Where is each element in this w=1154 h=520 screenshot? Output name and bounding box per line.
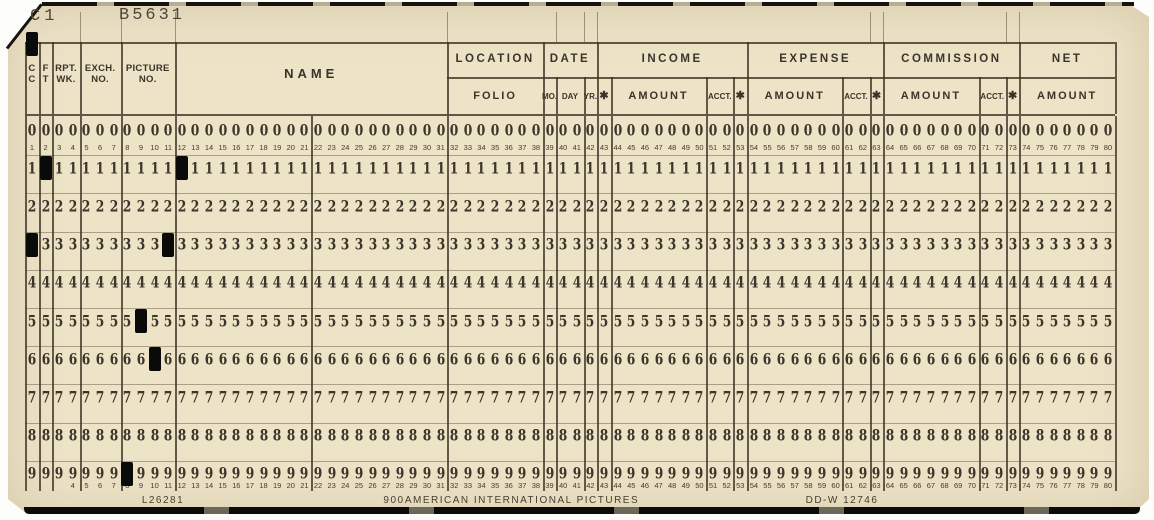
- digit-cell: 0: [843, 120, 854, 141]
- digit-cell: 3: [980, 234, 991, 255]
- digit-cell: 0: [912, 120, 923, 141]
- digit-cell: 0: [517, 120, 528, 141]
- digit-cell: 1: [557, 158, 568, 179]
- digit-cell: 0: [108, 120, 119, 141]
- digit-cell: 6: [530, 349, 541, 370]
- digit-cell: 2: [775, 196, 786, 217]
- digit-cell: 5: [462, 311, 473, 332]
- digit-cell: 8: [476, 425, 487, 446]
- digit-cell: 3: [1021, 234, 1032, 255]
- column-number-bottom: 52: [720, 481, 734, 490]
- digit-cell: 1: [122, 158, 133, 179]
- digit-cell: 7: [285, 387, 296, 408]
- digit-cell: 4: [598, 273, 609, 294]
- digit-cell: 2: [108, 196, 119, 217]
- punch-hole: [40, 156, 52, 180]
- digit-cell: 1: [803, 158, 814, 179]
- digit-cell: 5: [312, 311, 323, 332]
- digit-cell: 6: [367, 349, 378, 370]
- digit-cell: 5: [925, 311, 936, 332]
- column-number-bottom: 71: [978, 481, 992, 490]
- digit-cell: 8: [53, 425, 64, 446]
- digit-cell: 3: [1061, 234, 1072, 255]
- digit-cell: 0: [612, 120, 623, 141]
- digit-cell: 3: [394, 234, 405, 255]
- digit-cell: 0: [340, 120, 351, 141]
- digit-cell: 7: [217, 387, 228, 408]
- digit-cell: 5: [721, 311, 732, 332]
- scanned-punch-card-page: C1 B5631 CCFTRPT.WK.EXCH.NO.PICTURENO.NA…: [0, 0, 1154, 520]
- digit-cell: 1: [966, 158, 977, 179]
- digit-cell: 1: [244, 158, 255, 179]
- digit-cell: 3: [258, 234, 269, 255]
- digit-cell: 6: [707, 349, 718, 370]
- digit-cell: 5: [530, 311, 541, 332]
- digit-cell: 5: [108, 311, 119, 332]
- digit-cell: 0: [421, 120, 432, 141]
- digit-cell: 8: [884, 425, 895, 446]
- digit-cell: 4: [271, 273, 282, 294]
- column-number-top: 25: [352, 143, 366, 152]
- digit-cell: 4: [653, 273, 664, 294]
- digit-cell: 8: [503, 425, 514, 446]
- column-number-bottom: 10: [148, 481, 162, 490]
- digit-cell: 2: [1061, 196, 1072, 217]
- digit-cell: 1: [380, 158, 391, 179]
- digit-cell: 8: [162, 425, 173, 446]
- digit-cell: 5: [639, 311, 650, 332]
- digit-cell: 6: [898, 349, 909, 370]
- digit-cell: 5: [176, 311, 187, 332]
- digit-cell: 3: [993, 234, 1004, 255]
- digit-cell: 0: [544, 120, 555, 141]
- digit-cell: 4: [299, 273, 310, 294]
- field-header-name: NAME: [251, 66, 371, 81]
- digit-cell: 7: [122, 387, 133, 408]
- digit-cell: 4: [680, 273, 691, 294]
- digit-cell: 2: [421, 196, 432, 217]
- digit-cell: 4: [939, 273, 950, 294]
- company-name: AMERICAN INTERNATIONAL PICTURES: [405, 495, 639, 506]
- digit-cell: 0: [939, 120, 950, 141]
- column-number-top: 31: [434, 143, 448, 152]
- digit-cell: 8: [312, 425, 323, 446]
- digit-cell: 5: [598, 311, 609, 332]
- digit-cell: 3: [748, 234, 759, 255]
- digit-cell: 7: [530, 387, 541, 408]
- digit-cell: 4: [857, 273, 868, 294]
- digit-cell: 0: [162, 120, 173, 141]
- column-number-top: 39: [543, 143, 557, 152]
- digit-cell: 6: [53, 349, 64, 370]
- digit-cell: 4: [312, 273, 323, 294]
- digit-cell: 8: [462, 425, 473, 446]
- column-number-bottom: 73: [1006, 481, 1020, 490]
- digit-cell: 5: [408, 311, 419, 332]
- digit-cell: 0: [271, 120, 282, 141]
- column-number-top: 32: [447, 143, 461, 152]
- digit-cell: 7: [326, 387, 337, 408]
- digit-cell: 3: [435, 234, 446, 255]
- digit-cell: 4: [816, 273, 827, 294]
- digit-cell: 2: [557, 196, 568, 217]
- digit-cell: 4: [408, 273, 419, 294]
- digit-cell: 0: [380, 120, 391, 141]
- column-number-top: 37: [515, 143, 529, 152]
- digit-cell: 0: [734, 120, 745, 141]
- digit-cell: 4: [231, 273, 242, 294]
- digit-cell: 8: [149, 425, 160, 446]
- digit-cell: 1: [980, 158, 991, 179]
- digit-cell: 1: [530, 158, 541, 179]
- digit-cell: 3: [721, 234, 732, 255]
- column-number-bottom: 47: [652, 481, 666, 490]
- digit-cell: 6: [380, 349, 391, 370]
- digit-cell: 0: [367, 120, 378, 141]
- column-number-bottom: 79: [1087, 481, 1101, 490]
- digit-cell: 6: [421, 349, 432, 370]
- column-number-top: 43: [597, 143, 611, 152]
- digit-cell: 7: [94, 387, 105, 408]
- digit-cell: 4: [26, 273, 37, 294]
- digit-cell: 6: [122, 349, 133, 370]
- digit-cell: 2: [639, 196, 650, 217]
- digit-cell: 6: [394, 349, 405, 370]
- column-number-top: 24: [338, 143, 352, 152]
- digit-cell: 1: [394, 158, 405, 179]
- digit-cell: 3: [326, 234, 337, 255]
- digit-cell: 2: [1034, 196, 1045, 217]
- digit-cell: 1: [707, 158, 718, 179]
- digit-cell: 8: [67, 425, 78, 446]
- digit-cell: 4: [830, 273, 841, 294]
- digit-cell: 1: [721, 158, 732, 179]
- digit-cell: 8: [435, 425, 446, 446]
- column-number-bottom: 68: [938, 481, 952, 490]
- digit-cell: 4: [748, 273, 759, 294]
- digit-cell: 7: [517, 387, 528, 408]
- digit-cell: 2: [394, 196, 405, 217]
- digit-cell: 1: [843, 158, 854, 179]
- column-number-top: 3: [52, 143, 66, 152]
- column-number-top: 14: [202, 143, 216, 152]
- digit-cell: 4: [789, 273, 800, 294]
- digit-cell: 7: [149, 387, 160, 408]
- column-number-bottom: 33: [461, 481, 475, 490]
- digit-cell: 7: [1021, 387, 1032, 408]
- digit-cell: 3: [939, 234, 950, 255]
- column-number-bottom: 66: [910, 481, 924, 490]
- digit-cell: 7: [803, 387, 814, 408]
- digit-cell: 4: [394, 273, 405, 294]
- digit-cell: 4: [503, 273, 514, 294]
- digit-cell: 7: [435, 387, 446, 408]
- column-number-top: 19: [270, 143, 284, 152]
- column-number-top: 48: [665, 143, 679, 152]
- digit-cell: 8: [122, 425, 133, 446]
- digit-cell: 8: [530, 425, 541, 446]
- column-number-bottom: 80: [1101, 481, 1115, 490]
- digit-cell: 5: [734, 311, 745, 332]
- digit-cell: 1: [857, 158, 868, 179]
- digit-cell: 5: [816, 311, 827, 332]
- digit-cell: 5: [857, 311, 868, 332]
- column-number-top: 6: [93, 143, 107, 152]
- digit-cell: 2: [939, 196, 950, 217]
- digit-cell: 0: [231, 120, 242, 141]
- digit-cell: 3: [231, 234, 242, 255]
- digit-cell: 0: [135, 120, 146, 141]
- digit-cell: 2: [1021, 196, 1032, 217]
- digit-cell: 8: [789, 425, 800, 446]
- digit-cell: 6: [408, 349, 419, 370]
- digit-cell: 2: [843, 196, 854, 217]
- digit-cell: 6: [162, 349, 173, 370]
- column-number-bottom: 65: [897, 481, 911, 490]
- column-number-top: 60: [829, 143, 843, 152]
- digit-cell: 2: [830, 196, 841, 217]
- digit-cell: 4: [203, 273, 214, 294]
- digit-cell: 5: [149, 311, 160, 332]
- digit-cell: 5: [217, 311, 228, 332]
- digit-cell: 5: [884, 311, 895, 332]
- digit-cell: 8: [585, 425, 596, 446]
- digit-cell: 7: [1061, 387, 1072, 408]
- column-number-top: 63: [869, 143, 883, 152]
- column-number-top: 2: [39, 143, 53, 152]
- digit-cell: 5: [1034, 311, 1045, 332]
- digit-cell: 6: [67, 349, 78, 370]
- digit-cell: 6: [476, 349, 487, 370]
- column-number-bottom: 17: [243, 481, 257, 490]
- digit-cell: 8: [857, 425, 868, 446]
- column-number-top: 18: [257, 143, 271, 152]
- digit-cell: 3: [53, 234, 64, 255]
- digit-cell: 8: [544, 425, 555, 446]
- column-number-top: 68: [938, 143, 952, 152]
- digit-cell: 7: [557, 387, 568, 408]
- digit-cell: 4: [326, 273, 337, 294]
- digit-cell: 8: [448, 425, 459, 446]
- digit-cell: 6: [653, 349, 664, 370]
- digit-cell: 2: [53, 196, 64, 217]
- digit-cell: 1: [149, 158, 160, 179]
- digit-cell: 7: [1048, 387, 1059, 408]
- column-number-bottom: 58: [801, 481, 815, 490]
- digit-cell: 6: [108, 349, 119, 370]
- column-number-bottom: 22: [311, 481, 325, 490]
- digit-cell: 1: [53, 158, 64, 179]
- digit-cell: 1: [1102, 158, 1113, 179]
- digit-cell: 1: [353, 158, 364, 179]
- digit-cell: 5: [626, 311, 637, 332]
- digit-cell: 1: [748, 158, 759, 179]
- column-number-bottom: 15: [216, 481, 230, 490]
- digit-cell: 7: [1102, 387, 1113, 408]
- digit-cell: 0: [176, 120, 187, 141]
- digit-cell: 2: [857, 196, 868, 217]
- column-number-bottom: 39: [543, 481, 557, 490]
- digit-cell: 7: [162, 387, 173, 408]
- card-top-edge: [42, 2, 1134, 6]
- column-number-top: 70: [965, 143, 979, 152]
- digit-cell: 8: [1034, 425, 1045, 446]
- digit-cell: 6: [326, 349, 337, 370]
- digit-cell: 5: [666, 311, 677, 332]
- digit-cell: 6: [517, 349, 528, 370]
- digit-cell: 3: [639, 234, 650, 255]
- digit-cell: 2: [81, 196, 92, 217]
- column-number-bottom: 57: [788, 481, 802, 490]
- digit-cell: 0: [312, 120, 323, 141]
- digit-cell: 9: [40, 464, 51, 485]
- row-ledger-line: [25, 346, 1115, 347]
- digit-cell: 1: [653, 158, 664, 179]
- digit-cell: 7: [40, 387, 51, 408]
- digit-cell: 8: [912, 425, 923, 446]
- digit-cell: 8: [721, 425, 732, 446]
- digit-cell: 0: [626, 120, 637, 141]
- digit-cell: 1: [285, 158, 296, 179]
- column-number-bottom: 56: [774, 481, 788, 490]
- column-number-bottom: 60: [829, 481, 843, 490]
- column-number-top: 1: [25, 143, 39, 152]
- digit-cell: 2: [299, 196, 310, 217]
- digit-cell: 2: [1102, 196, 1113, 217]
- digit-cell: 3: [312, 234, 323, 255]
- digit-cell: 3: [530, 234, 541, 255]
- digit-cell: 5: [81, 311, 92, 332]
- digit-cell: 0: [94, 120, 105, 141]
- punch-hole: [26, 233, 38, 257]
- digit-cell: 4: [435, 273, 446, 294]
- digit-cell: 3: [1034, 234, 1045, 255]
- digit-cell: 0: [462, 120, 473, 141]
- column-number-top: 22: [311, 143, 325, 152]
- digit-cell: 6: [203, 349, 214, 370]
- column-number-bottom: 5: [79, 481, 93, 490]
- digit-cell: 1: [871, 158, 882, 179]
- digit-cell: 6: [503, 349, 514, 370]
- header-mid-rule: [447, 77, 1115, 79]
- digit-cell: 6: [993, 349, 1004, 370]
- digit-cell: 8: [980, 425, 991, 446]
- digit-cell: 6: [803, 349, 814, 370]
- digit-cell: 8: [1061, 425, 1072, 446]
- digit-cell: 7: [1075, 387, 1086, 408]
- digit-cell: 6: [244, 349, 255, 370]
- digit-cell: 0: [26, 120, 37, 141]
- digit-cell: 2: [707, 196, 718, 217]
- column-number-bottom: 18: [257, 481, 271, 490]
- column-number-top: 74: [1019, 143, 1033, 152]
- digit-cell: 0: [1021, 120, 1032, 141]
- digit-cell: 4: [1048, 273, 1059, 294]
- digit-cell: 7: [925, 387, 936, 408]
- digit-cell: 1: [340, 158, 351, 179]
- digit-cell: 2: [789, 196, 800, 217]
- digit-cell: 7: [775, 387, 786, 408]
- digit-cell: 6: [340, 349, 351, 370]
- column-number-bottom: 44: [611, 481, 625, 490]
- digit-cell: 2: [435, 196, 446, 217]
- digit-cell: 8: [707, 425, 718, 446]
- column-number-bottom: 36: [502, 481, 516, 490]
- digit-cell: 8: [653, 425, 664, 446]
- digit-cell: 0: [1007, 120, 1018, 141]
- digit-cell: 5: [244, 311, 255, 332]
- digit-cell: 0: [190, 120, 201, 141]
- digit-cell: 4: [40, 273, 51, 294]
- digit-cell: 1: [544, 158, 555, 179]
- column-number-bottom: 28: [393, 481, 407, 490]
- column-number-top: 8: [120, 143, 134, 152]
- digit-cell: 3: [898, 234, 909, 255]
- digit-cell: 2: [190, 196, 201, 217]
- digit-cell: 3: [353, 234, 364, 255]
- digit-cell: 0: [680, 120, 691, 141]
- digit-cell: 4: [285, 273, 296, 294]
- digit-cell: 6: [353, 349, 364, 370]
- digit-cell: 2: [1089, 196, 1100, 217]
- digit-cell: 5: [53, 311, 64, 332]
- digit-cell: 6: [81, 349, 92, 370]
- digit-cell: 4: [734, 273, 745, 294]
- digit-cell: 5: [353, 311, 364, 332]
- digit-cell: 4: [707, 273, 718, 294]
- digit-cell: 0: [149, 120, 160, 141]
- digit-cell: 5: [435, 311, 446, 332]
- digit-cell: 3: [612, 234, 623, 255]
- digit-cell: 5: [557, 311, 568, 332]
- digit-cell: 2: [489, 196, 500, 217]
- column-number-bottom: 24: [338, 481, 352, 490]
- column-number-bottom: 29: [406, 481, 420, 490]
- digit-cell: 0: [530, 120, 541, 141]
- digit-cell: 2: [122, 196, 133, 217]
- digit-cell: 4: [585, 273, 596, 294]
- digit-cell: 5: [612, 311, 623, 332]
- digit-cell: 5: [285, 311, 296, 332]
- digit-cell: 3: [517, 234, 528, 255]
- digit-cell: 8: [1048, 425, 1059, 446]
- top-strip-tick: [870, 12, 871, 42]
- digit-cell: 0: [1048, 120, 1059, 141]
- digit-cell: 5: [912, 311, 923, 332]
- digit-cell: 0: [871, 120, 882, 141]
- column-number-bottom: 42: [583, 481, 597, 490]
- top-strip-tick: [597, 12, 598, 42]
- digit-cell: 2: [666, 196, 677, 217]
- digit-cell: 0: [748, 120, 759, 141]
- digit-cell: 8: [952, 425, 963, 446]
- digit-cell: 2: [408, 196, 419, 217]
- digit-cell: 5: [380, 311, 391, 332]
- digit-cell: 8: [135, 425, 146, 446]
- digit-cell: 4: [448, 273, 459, 294]
- digit-cell: 4: [721, 273, 732, 294]
- digit-cell: 5: [394, 311, 405, 332]
- digit-cell: 1: [1021, 158, 1032, 179]
- digit-cell: 6: [952, 349, 963, 370]
- digit-cell: 0: [585, 120, 596, 141]
- digit-cell: 7: [612, 387, 623, 408]
- column-number-top: 58: [801, 143, 815, 152]
- digit-cell: 6: [912, 349, 923, 370]
- column-number-bottom: 69: [951, 481, 965, 490]
- digit-cell: 5: [1089, 311, 1100, 332]
- digit-cell: 0: [1102, 120, 1113, 141]
